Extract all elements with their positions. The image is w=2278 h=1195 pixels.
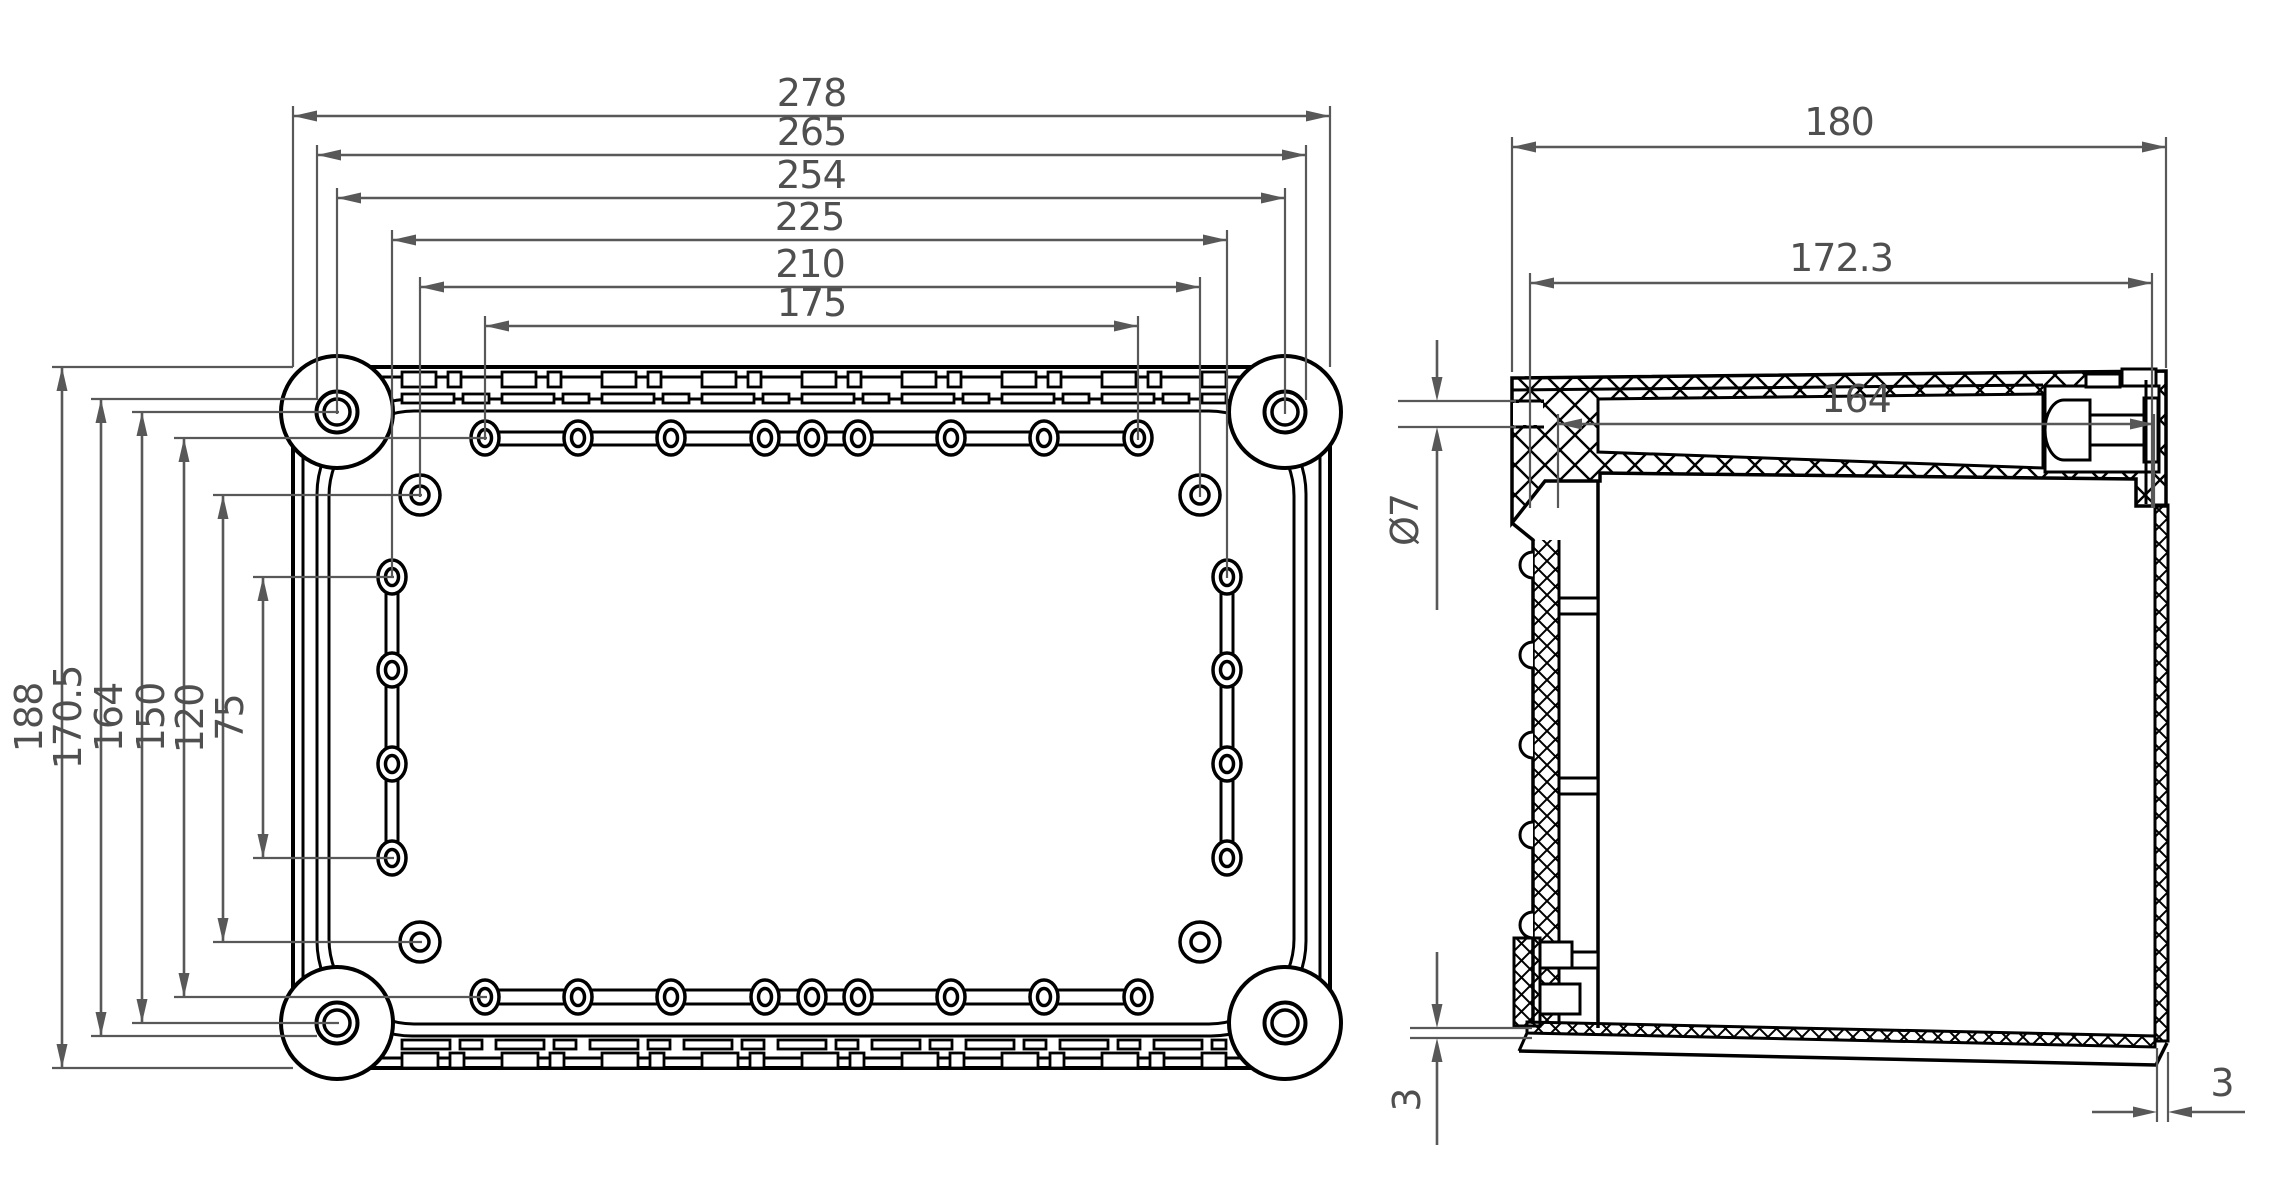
dim-label-diameter-7: Ø7 (1383, 494, 1427, 546)
dim-label-265: 265 (777, 110, 847, 154)
dim-label-175: 175 (777, 281, 847, 325)
dim-label-278: 278 (777, 71, 847, 115)
dim-label-3-left: 3 (1385, 1088, 1429, 1111)
dim-label-225: 225 (775, 195, 845, 239)
dim-label-180: 180 (1804, 100, 1874, 144)
dim-label-164: 164 (1821, 377, 1891, 421)
dim-label-172.3: 172.3 (1789, 236, 1893, 280)
dim-label-120: 120 (168, 684, 212, 754)
part-geometry (281, 356, 2168, 1079)
technical-drawing-sheet: 278265254225210175188170.516415012075180… (0, 0, 2278, 1195)
drawing-canvas: 278265254225210175188170.516415012075180… (0, 0, 2278, 1195)
dim-label-75: 75 (208, 694, 252, 740)
dim-label-164: 164 (87, 683, 131, 753)
dim-label-150: 150 (129, 683, 173, 753)
dim-label-3-right: 3 (2210, 1061, 2233, 1105)
dim-label-170.5: 170.5 (46, 666, 90, 770)
dim-label-210: 210 (775, 242, 845, 286)
dim-label-188: 188 (7, 683, 51, 753)
dim-label-254: 254 (776, 153, 846, 197)
